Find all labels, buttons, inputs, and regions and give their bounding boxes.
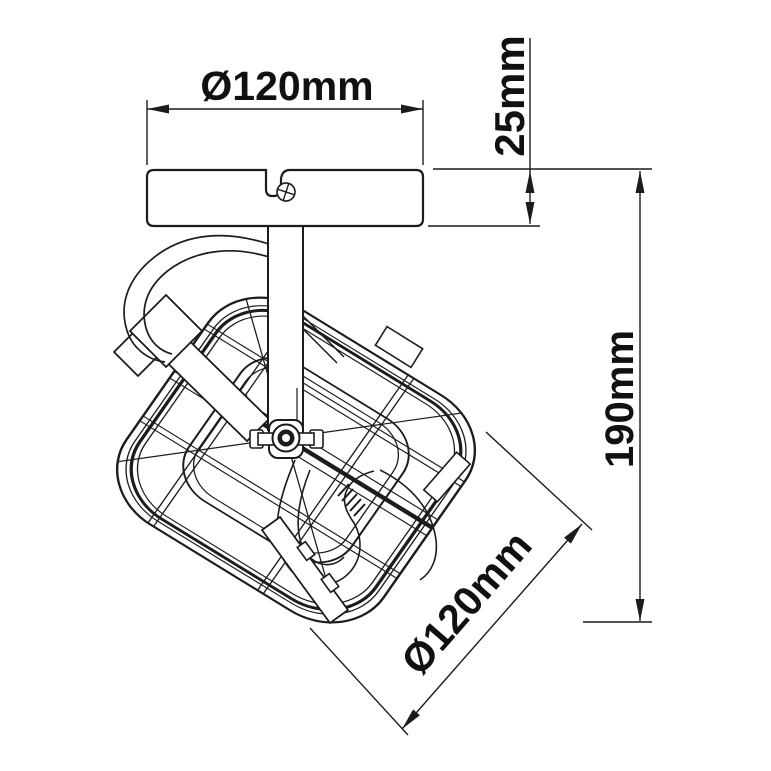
dim-label-canopy-diameter: Ø120mm — [200, 63, 373, 109]
dim-canopy-diameter: Ø120mm — [147, 63, 423, 165]
ceiling-canopy — [147, 170, 423, 226]
dim-label-canopy-height: 25mm — [486, 35, 533, 156]
dim-label-overall-height: 190mm — [598, 330, 642, 468]
spotlight-technical-drawing: Ø120mm 25mm 190mm Ø120mm — [0, 0, 771, 771]
dim-canopy-height: 25mm — [428, 35, 652, 226]
dim-overall-height: 190mm — [583, 171, 652, 622]
drawing-canvas: Ø120mm 25mm 190mm Ø120mm — [0, 0, 771, 771]
stem — [268, 218, 303, 430]
